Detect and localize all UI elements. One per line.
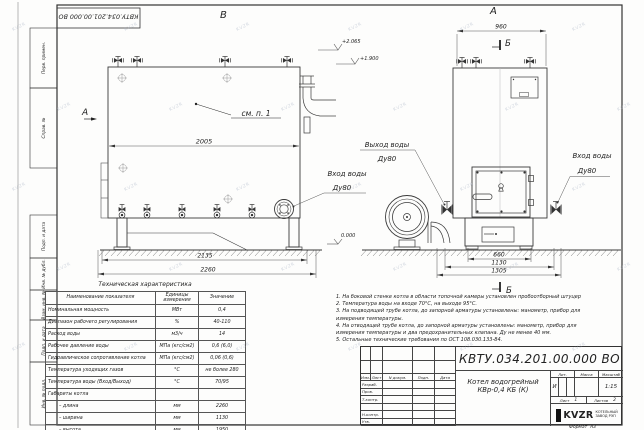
- col-list: Лист: [371, 374, 383, 381]
- table-row: Диапазон рабочего регулирования%40-110: [46, 317, 246, 329]
- tech-col-value: Значение: [199, 292, 246, 305]
- tech-col-units: Единицы измерения: [156, 292, 199, 305]
- technical-notes: 1. На боковой стенке котла в области топ…: [336, 294, 624, 344]
- col-data: Дата: [435, 374, 456, 381]
- sheet-label: Лист: [560, 398, 570, 403]
- tech-col-name: Наименование показателя: [46, 292, 156, 305]
- mass-label: Масса: [575, 371, 599, 378]
- table-row: Температура уходящих газов°Сне более 280: [46, 365, 246, 377]
- dim-960: 960: [495, 24, 507, 31]
- sheets-value: 2: [613, 398, 616, 403]
- table-row: – длинамм2260: [46, 401, 246, 413]
- water-inlet-dn-a: Ду80: [577, 167, 597, 175]
- note-line: измерения температуры и два предохраните…: [336, 330, 624, 337]
- elevation-2065: +2.065: [342, 39, 361, 45]
- drawing-sheet: Перв. примен. Справ. № Подп. и дата Инв.…: [0, 0, 644, 430]
- water-inlet-dn-b: Ду80: [332, 184, 352, 192]
- lit-value: И: [551, 378, 559, 397]
- note-line: 2. Температура воды на входе 70°С, на вы…: [336, 301, 624, 308]
- frame-label: Перв. примен.: [41, 42, 47, 74]
- table-row: – ширинамм1130: [46, 413, 246, 425]
- elevation-0000: 0.000: [341, 233, 355, 239]
- water-outlet-label: Выход воды: [365, 141, 410, 149]
- product-name: Котел водогрейный КВр-0,4 КБ (К): [456, 371, 551, 426]
- scale-label: Масштаб: [599, 371, 623, 378]
- title-block-cell: [435, 361, 456, 375]
- kvzr-logo-icon: [556, 409, 561, 422]
- kvzr-logo-text: KVZR: [563, 410, 593, 421]
- tech-table: Наименование показателя Единицы измерени…: [45, 291, 246, 430]
- elevation-1900: +1.900: [360, 56, 379, 62]
- view-b-label: В: [220, 10, 227, 21]
- row-prov: Пров.: [361, 389, 383, 397]
- section-b-top-label: Б: [505, 39, 511, 49]
- view-a-label: А: [489, 6, 497, 17]
- product-name-line1: Котел водогрейный: [467, 378, 538, 386]
- title-block: Изм. Лист N докум. Подп. Дата Разраб. Пр…: [360, 346, 622, 425]
- company-name: КОТЕЛЬНЫЙ ЗАВОД РЭП: [595, 411, 617, 419]
- detail-callout: см. п. 1: [242, 109, 271, 118]
- dim-1130: 1130: [491, 260, 506, 267]
- sheet-value: 1: [574, 398, 577, 403]
- tech-table-title: Техническая характеристика: [45, 281, 245, 288]
- sheet-cell: Лист 1: [551, 397, 587, 404]
- dim-660: 660: [493, 252, 505, 259]
- col-podp: Подп.: [413, 374, 435, 381]
- label-leaders: [293, 150, 611, 208]
- mass-value: [575, 378, 599, 397]
- row-utv: Утв.: [361, 419, 383, 427]
- table-row: Рабочее давление водыМПа (кгс/см2)0,6 (6…: [46, 341, 246, 353]
- view-a-arrow-label: А: [81, 108, 88, 118]
- corner-stamp-docnumber: КВТУ.034.201.00.000 ВО: [59, 13, 139, 20]
- table-row: Температура воды (Вход/Выход)°С70/95: [46, 377, 246, 389]
- water-inlet-label-a: Вход воды: [572, 152, 612, 160]
- document-number: КВТУ.034.201.00.000 ВО: [456, 347, 623, 371]
- dim-2005: 2005: [196, 138, 213, 146]
- dim-2135: 2135: [197, 253, 212, 260]
- view-b-boiler-side: [100, 57, 336, 251]
- table-row: Расход водым3/ч14: [46, 329, 246, 341]
- title-block-cell: [383, 347, 413, 361]
- note-line: 1. На боковой стенке котла в области топ…: [336, 294, 624, 301]
- col-ndocum: N докум.: [383, 374, 413, 381]
- title-block-cell: [361, 361, 371, 375]
- lit-label: Лит.: [551, 371, 575, 378]
- sheets-label: Листов: [594, 398, 608, 403]
- product-name-line2: КВр-0,4 КБ (К): [477, 386, 528, 394]
- water-outlet-dn: Ду80: [377, 155, 397, 163]
- col-izm: Изм.: [361, 374, 371, 381]
- tech-table-header: Наименование показателя Единицы измерени…: [46, 292, 246, 305]
- company-cell: KVZR КОТЕЛЬНЫЙ ЗАВОД РЭП: [551, 404, 623, 426]
- elevation-texts: +2.065 +1.900 0.000: [341, 39, 379, 239]
- table-row: Габариты котла: [46, 389, 246, 401]
- elevation-marks: [318, 44, 359, 244]
- row-razrab: Разраб.: [361, 381, 383, 389]
- title-block-cell: [361, 347, 371, 361]
- note-line: 4. На отводящей трубе котла, до запорной…: [336, 323, 624, 330]
- title-block-cell: [383, 361, 413, 375]
- dim-2260: 2260: [200, 267, 215, 274]
- title-block-cell: [413, 347, 435, 361]
- row-tkontr: Т.контр.: [361, 396, 383, 404]
- pipe-labels: Выход воды Ду80 Вход воды Ду80 Вход воды…: [327, 141, 612, 192]
- water-inlet-label-b: Вход воды: [327, 170, 367, 178]
- table-row: Номинальная мощностьМВт0,4: [46, 305, 246, 317]
- sheets-cell: Листов 2: [587, 397, 623, 404]
- note-line: измерения температуры.: [336, 316, 624, 323]
- title-block-cell: [371, 361, 383, 375]
- frame-label: Подп. и дата: [41, 222, 47, 252]
- dim-1305: 1305: [491, 268, 506, 275]
- note-line: 3. На подводящей трубе котла, до запорно…: [336, 308, 624, 315]
- title-block-cell: [413, 361, 435, 375]
- table-row: Гидравлическое сопротивление котлаМПа (к…: [46, 353, 246, 365]
- title-block-cell: [435, 347, 456, 361]
- view-labels: В А А Б Б см. п. 1: [81, 6, 512, 296]
- ground-hatch-right: [361, 251, 618, 257]
- frame-label: Справ. №: [41, 117, 47, 138]
- scale-value: 1:15: [599, 378, 623, 397]
- company-logo: KVZR КОТЕЛЬНЫЙ ЗАВОД РЭП: [556, 409, 617, 422]
- note-line: 5. Остальные технические требования по О…: [336, 337, 624, 344]
- table-row: – высотамм1950: [46, 425, 246, 430]
- section-mark-strokes: [84, 40, 500, 292]
- title-block-cell: [371, 347, 383, 361]
- row-nkontr: Н.контр.: [361, 411, 383, 419]
